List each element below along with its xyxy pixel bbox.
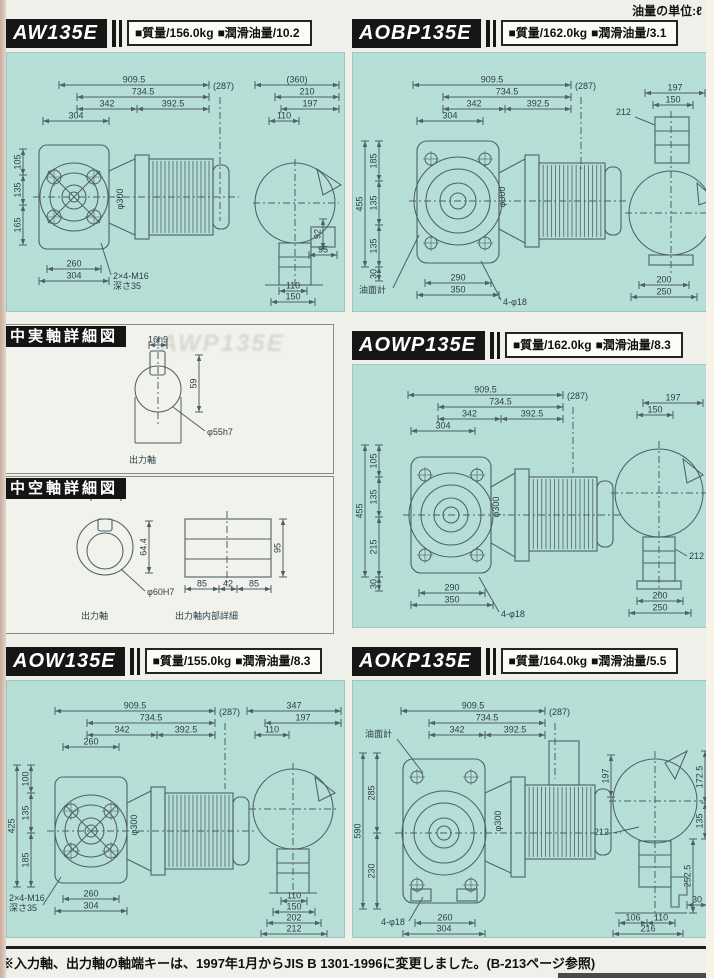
dim-label: 100 xyxy=(21,771,31,786)
oil-value: ■潤滑油量/8.3 xyxy=(596,338,671,352)
dim-label: 290 xyxy=(450,273,465,283)
dim-label: 30 xyxy=(692,895,702,905)
dim-label: 135 xyxy=(369,238,379,253)
technical-drawing: 909.5734.5342392.5304(287)19715021245518… xyxy=(353,53,711,311)
dim-label: 216 xyxy=(640,924,655,934)
dim-label: 4-φ18 xyxy=(503,297,527,307)
dim-label: φ55h7 xyxy=(207,427,233,437)
oil-value: ■潤滑油量/5.5 xyxy=(591,654,666,668)
dim-label: 392.5 xyxy=(527,99,550,109)
panel-header: AOKP135E ■質量/164.0kg■潤滑油量/5.5 xyxy=(352,642,712,680)
drawing-geometry: 909.5734.5342392.5260(287)34719711042510… xyxy=(7,701,341,938)
drawing-geometry: 909.5734.5342392.5304(287)19715045510513… xyxy=(355,385,708,620)
dim-label: 172.5 xyxy=(695,766,705,789)
model-badge: AOKP135E xyxy=(352,647,481,676)
mass-value: ■質量/162.0kg xyxy=(509,26,588,40)
dim-label: 4-φ18 xyxy=(381,917,405,927)
dim-label: 135 xyxy=(13,182,23,197)
dim-label: 135 xyxy=(21,805,31,820)
dim-label: 200 xyxy=(656,275,671,285)
dim-label: 212 xyxy=(594,827,609,837)
dim-label: 350 xyxy=(450,285,465,295)
dim-label: 197 xyxy=(295,713,310,723)
divider-bars-icon xyxy=(486,20,496,47)
dim-label: (287) xyxy=(219,707,240,717)
dim-label: 734.5 xyxy=(140,713,163,723)
solid-shaft-title: 中実軸詳細図 xyxy=(2,326,126,347)
dim-label: 105 xyxy=(13,154,23,169)
dim-label: 909.5 xyxy=(462,701,485,711)
divider-bars-icon xyxy=(112,20,122,47)
spec-box: ■質量/155.0kg■潤滑油量/8.3 xyxy=(145,648,323,674)
dim-label: 909.5 xyxy=(124,701,147,711)
dim-label: 215 xyxy=(369,539,379,554)
panel-aw135e: AW135E ■質量/156.0kg■潤滑油量/10.2 909.5734.53… xyxy=(6,14,345,312)
dim-label: 110 xyxy=(265,725,279,735)
drawing-area: 909.5734.5342392.5(287)油面計5902852304-φ18… xyxy=(352,680,712,938)
dim-label: 4-φ18 xyxy=(501,609,525,619)
technical-drawing: 909.5734.5342392.5(287)油面計5902852304-φ18… xyxy=(353,681,711,937)
drawing-geometry: 909.5734.5342392.5304(287)19715021245518… xyxy=(355,75,712,308)
mass-value: ■質量/155.0kg xyxy=(153,654,232,668)
dim-label: 150 xyxy=(647,405,662,415)
dim-label: 590 xyxy=(353,823,363,838)
dim-label: 342 xyxy=(449,725,464,735)
dim-label: 425 xyxy=(7,818,17,833)
spec-box: ■質量/162.0kg■潤滑油量/8.3 xyxy=(505,332,683,358)
footer-divider xyxy=(0,946,714,949)
spec-box: ■質量/156.0kg■潤滑油量/10.2 xyxy=(127,20,312,46)
panel-aokp135e: AOKP135E ■質量/164.0kg■潤滑油量/5.5 909.5734.5… xyxy=(352,642,712,938)
dim-label: 110 xyxy=(287,891,301,901)
dim-label: φ300 xyxy=(115,189,125,210)
dim-label: 392.5 xyxy=(162,99,185,109)
dim-label: (287) xyxy=(575,81,596,91)
dim-label: φ60H7 xyxy=(147,587,174,597)
dim-label: 304 xyxy=(435,421,450,431)
dim-label: 出力軸 xyxy=(81,610,108,621)
panel-aow135e: AOW135E ■質量/155.0kg■潤滑油量/8.3 909.5734.53… xyxy=(6,642,345,938)
dim-label: 油面計 xyxy=(365,728,392,739)
dim-label: 出力軸内部詳細 xyxy=(175,610,238,621)
dim-label: 392.5 xyxy=(521,409,544,419)
dim-label: 197 xyxy=(302,99,317,109)
drawing-geometry: 18JS964.4φ60H7出力軸85428595出力軸内部詳細 xyxy=(77,487,287,622)
dim-label: 455 xyxy=(355,503,365,518)
dim-label: 285 xyxy=(367,785,377,800)
drawing-geometry: 909.5734.5342392.5(287)油面計5902852304-φ18… xyxy=(353,701,709,938)
dim-label: 105 xyxy=(369,453,379,468)
dim-label: 197 xyxy=(665,393,680,403)
dim-label: 260 xyxy=(83,737,98,747)
dim-label: 150 xyxy=(285,292,300,302)
dim-label: 250 xyxy=(652,603,667,613)
mass-value: ■質量/164.0kg xyxy=(509,654,588,668)
dim-label: 342 xyxy=(466,99,481,109)
dim-label: 165 xyxy=(13,217,23,232)
technical-drawing: 909.5734.5342392.5304(287)(360)210197110… xyxy=(7,53,344,311)
footer-note: ※入力軸、出力軸の軸端キーは、1997年1月からJIS B 1301-1996に… xyxy=(1,953,595,972)
spec-box: ■質量/162.0kg■潤滑油量/3.1 xyxy=(501,20,679,46)
dim-label: 230 xyxy=(367,863,377,878)
dim-label: (287) xyxy=(213,81,234,91)
dim-label: (287) xyxy=(549,707,570,717)
dim-label: 734.5 xyxy=(496,87,519,97)
dim-label: 深さ35 xyxy=(113,281,141,291)
dim-label: 85 xyxy=(197,579,207,589)
dim-label: 2×4-M16 xyxy=(113,271,149,281)
dim-label: 909.5 xyxy=(474,385,497,395)
ghost-showthrough-text: AWP135E xyxy=(160,330,285,358)
dim-label: 202 xyxy=(286,913,301,923)
dim-label: 260 xyxy=(437,913,452,923)
panel-aobp135e: AOBP135E ■質量/162.0kg■潤滑油量/3.1 909.5734.5… xyxy=(352,14,712,312)
panel-aowp135e: AOWP135E ■質量/162.0kg■潤滑油量/8.3 909.5734.5… xyxy=(352,326,712,628)
model-badge: AOBP135E xyxy=(352,19,481,48)
dim-label: 212 xyxy=(616,107,631,117)
dim-label: 200 xyxy=(652,591,667,601)
dim-label: φ300 xyxy=(493,811,503,832)
dim-label: 392.5 xyxy=(175,725,198,735)
dim-label: 64.4 xyxy=(139,538,149,556)
dim-label: 250 xyxy=(656,287,671,297)
dim-label: 135 xyxy=(369,489,379,504)
divider-bars-icon xyxy=(486,648,496,675)
dim-label: 342 xyxy=(99,99,114,109)
dim-label: 909.5 xyxy=(123,75,146,85)
dim-label: 212 xyxy=(286,924,301,934)
dim-label: 260 xyxy=(66,259,81,269)
dim-label: 42 xyxy=(223,579,233,589)
dim-label: 135 xyxy=(695,813,705,828)
mass-value: ■質量/162.0kg xyxy=(513,338,592,352)
dim-label: 304 xyxy=(68,111,83,121)
dim-label: 392.5 xyxy=(504,725,527,735)
dim-label: 342 xyxy=(462,409,477,419)
dim-label: 342 xyxy=(114,725,129,735)
dim-label: 197 xyxy=(667,83,682,93)
panel-header: AOBP135E ■質量/162.0kg■潤滑油量/3.1 xyxy=(352,14,712,52)
drawing-geometry: 909.5734.5342392.5304(287)(360)210197110… xyxy=(13,75,342,307)
dim-label: 304 xyxy=(442,111,457,121)
dim-label: 110 xyxy=(277,111,291,121)
dim-label: 59 xyxy=(189,378,199,388)
dim-label: 212 xyxy=(689,551,704,561)
dim-label: 909.5 xyxy=(481,75,504,85)
dim-label: 734.5 xyxy=(476,713,499,723)
dim-label: 30 xyxy=(369,269,379,279)
dim-label: 150 xyxy=(286,902,301,912)
divider-bars-icon xyxy=(490,332,500,359)
mass-value: ■質量/156.0kg xyxy=(135,26,214,40)
oil-value: ■潤滑油量/3.1 xyxy=(591,26,666,40)
dim-label: 290 xyxy=(444,583,459,593)
dim-label: 734.5 xyxy=(132,87,155,97)
dim-label: 95 xyxy=(273,543,283,553)
dim-label: 210 xyxy=(299,87,314,97)
spec-box: ■質量/164.0kg■潤滑油量/5.5 xyxy=(501,648,679,674)
dim-label: 2×4-M16 xyxy=(9,893,45,903)
dim-label: 304 xyxy=(436,924,451,934)
technical-drawing: 909.5734.5342392.5304(287)19715045510513… xyxy=(353,365,711,627)
model-badge: AW135E xyxy=(6,19,107,48)
dim-label: 110 xyxy=(654,913,668,923)
oil-unit-note: 油量の単位:ℓ xyxy=(632,2,702,19)
divider-bars-icon xyxy=(130,648,140,675)
oil-value: ■潤滑油量/10.2 xyxy=(218,26,300,40)
hollow-shaft-title: 中空軸詳細図 xyxy=(2,478,126,499)
dim-label: 出力軸 xyxy=(129,454,156,465)
dim-label: 95 xyxy=(318,245,328,255)
dim-label: 347 xyxy=(286,701,301,711)
dim-label: 197 xyxy=(601,768,611,783)
dim-label: 734.5 xyxy=(489,397,512,407)
dim-label: 深さ35 xyxy=(9,903,37,913)
dim-label: (287) xyxy=(567,391,588,401)
dim-label: 350 xyxy=(444,595,459,605)
panel-header: AW135E ■質量/156.0kg■潤滑油量/10.2 xyxy=(6,14,345,52)
dim-label: 185 xyxy=(21,852,31,867)
dim-label: 304 xyxy=(66,271,81,281)
hollow-shaft-drawing: 18JS964.4φ60H7出力軸85428595出力軸内部詳細 xyxy=(3,477,331,631)
page-edge-left xyxy=(0,0,6,978)
dim-label: 106 xyxy=(625,913,640,923)
hollow-shaft-detail-box: 18JS964.4φ60H7出力軸85428595出力軸内部詳細 xyxy=(2,476,334,634)
technical-drawing: 909.5734.5342392.5260(287)34719711042510… xyxy=(7,681,344,937)
drawing-area: 909.5734.5342392.5304(287)(360)210197110… xyxy=(6,52,345,312)
dim-label: 455 xyxy=(355,196,365,211)
dim-label: (360) xyxy=(286,75,307,85)
oil-value: ■潤滑油量/8.3 xyxy=(235,654,310,668)
page-bottom-edge xyxy=(558,973,714,978)
dim-label: 油面計 xyxy=(359,284,386,295)
page-edge-right xyxy=(706,0,714,978)
drawing-area: 909.5734.5342392.5304(287)19715045510513… xyxy=(352,364,712,628)
model-badge: AOWP135E xyxy=(352,331,485,360)
dim-label: 260 xyxy=(83,889,98,899)
model-badge: AOW135E xyxy=(6,647,125,676)
dim-label: 85 xyxy=(249,579,259,589)
dim-label: 185 xyxy=(369,153,379,168)
drawing-area: 909.5734.5342392.5304(287)19715021245518… xyxy=(352,52,712,312)
drawing-area: 909.5734.5342392.5260(287)34719711042510… xyxy=(6,680,345,938)
panel-header: AOWP135E ■質量/162.0kg■潤滑油量/8.3 xyxy=(352,326,712,364)
panel-header: AOW135E ■質量/155.0kg■潤滑油量/8.3 xyxy=(6,642,345,680)
dim-label: 304 xyxy=(83,901,98,911)
dim-label: φ300 xyxy=(129,815,139,836)
dim-label: 30 xyxy=(369,579,379,589)
dim-label: 135 xyxy=(369,195,379,210)
dim-label: 150 xyxy=(665,95,680,105)
